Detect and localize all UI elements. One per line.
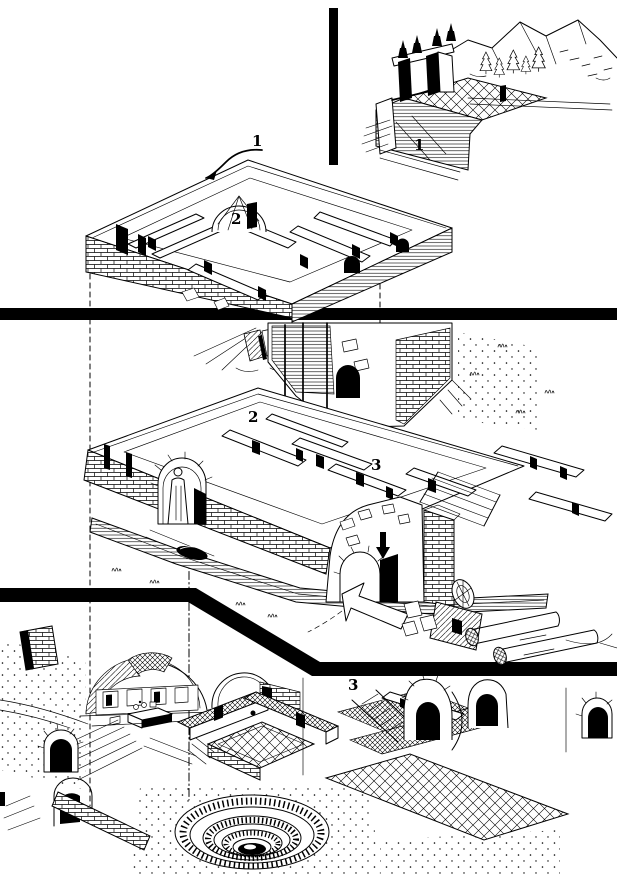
large-vaulted-room — [80, 653, 214, 764]
callout-middle-floor: 2 — [248, 410, 258, 425]
callout-upper-dome: 2 — [231, 212, 241, 227]
cutaway-drawing — [0, 0, 617, 882]
callout-inset-terrace: 1 — [414, 138, 424, 153]
stepped-well — [175, 795, 329, 869]
callout-upper-entry: 1 — [252, 134, 262, 149]
callout-middle-rooms: 3 — [371, 458, 381, 473]
illustration-page: 1 1 2 2 3 3 — [0, 0, 617, 882]
upper-level-cutaway — [86, 150, 452, 322]
right-wing-rooms — [338, 673, 612, 754]
inset-hilltop-vignette — [362, 20, 617, 180]
divider-bar-vertical — [329, 8, 338, 165]
callout-lower-floor: 3 — [348, 678, 358, 693]
